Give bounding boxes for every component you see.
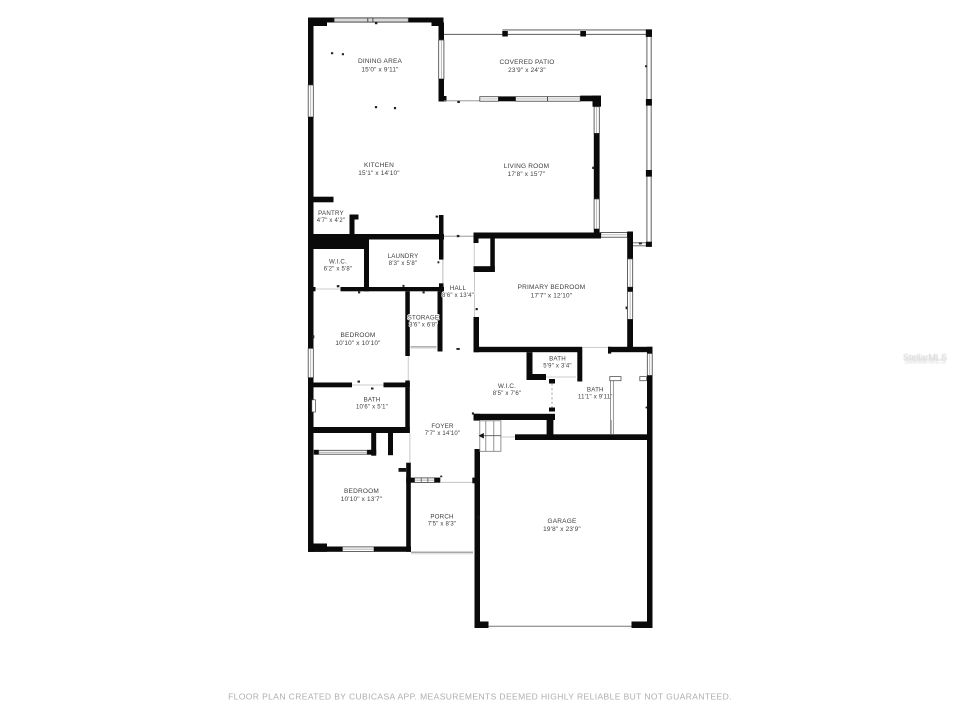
svg-text:BEDROOM: BEDROOM bbox=[341, 332, 376, 339]
svg-text:W.I.C.: W.I.C. bbox=[329, 259, 347, 266]
svg-text:GARAGE: GARAGE bbox=[547, 518, 576, 525]
svg-text:15'0" x 9'11": 15'0" x 9'11" bbox=[361, 67, 398, 74]
svg-text:15'1" x 14'10": 15'1" x 14'10" bbox=[358, 170, 399, 177]
svg-text:BATH: BATH bbox=[364, 396, 381, 403]
svg-text:4'7" x 4'2": 4'7" x 4'2" bbox=[317, 218, 345, 224]
svg-text:17'7" x 12'10": 17'7" x 12'10" bbox=[531, 293, 572, 300]
svg-text:FOYER: FOYER bbox=[431, 423, 454, 430]
svg-text:17'8" x 15'7": 17'8" x 15'7" bbox=[508, 171, 546, 178]
svg-text:8'5" x 7'6": 8'5" x 7'6" bbox=[493, 391, 521, 397]
svg-text:8'3" x 5'8": 8'3" x 5'8" bbox=[389, 261, 417, 267]
svg-text:W.I.C.: W.I.C. bbox=[498, 383, 516, 390]
svg-text:FLOOR PLAN CREATED BY CUBICASA: FLOOR PLAN CREATED BY CUBICASA APP. MEAS… bbox=[228, 692, 732, 702]
svg-text:LAUNDRY: LAUNDRY bbox=[388, 253, 419, 260]
svg-text:KITCHEN: KITCHEN bbox=[364, 162, 394, 169]
svg-text:LIVING ROOM: LIVING ROOM bbox=[504, 163, 550, 170]
svg-text:19'8" x 23'9": 19'8" x 23'9" bbox=[543, 526, 581, 533]
svg-text:STORAGE: STORAGE bbox=[408, 314, 440, 321]
svg-text:7'5" x 8'3": 7'5" x 8'3" bbox=[428, 521, 456, 527]
svg-text:10'10" x 13'7": 10'10" x 13'7" bbox=[341, 496, 382, 503]
svg-text:7'7" x 14'10": 7'7" x 14'10" bbox=[425, 431, 461, 437]
svg-text:PORCH: PORCH bbox=[430, 513, 453, 520]
svg-text:StellarMLS: StellarMLS bbox=[904, 356, 946, 366]
svg-text:BATH: BATH bbox=[587, 387, 604, 394]
svg-text:10'10" x 10'10": 10'10" x 10'10" bbox=[335, 340, 380, 347]
svg-text:PANTRY: PANTRY bbox=[318, 210, 344, 217]
svg-text:DINING AREA: DINING AREA bbox=[358, 58, 403, 65]
svg-text:HALL: HALL bbox=[450, 285, 467, 292]
svg-text:23'9" x 24'3": 23'9" x 24'3" bbox=[508, 67, 546, 74]
svg-text:BATH: BATH bbox=[549, 355, 566, 362]
svg-text:8'6" x 13'4": 8'6" x 13'4" bbox=[442, 293, 474, 299]
svg-text:BEDROOM: BEDROOM bbox=[344, 488, 379, 495]
svg-text:PRIMARY BEDROOM: PRIMARY BEDROOM bbox=[518, 284, 586, 291]
svg-text:10'6" x 5'1": 10'6" x 5'1" bbox=[356, 404, 388, 410]
svg-text:6'2" x 5'8": 6'2" x 5'8" bbox=[324, 267, 352, 273]
svg-text:3'6" x 6'8": 3'6" x 6'8" bbox=[409, 322, 437, 328]
svg-text:COVERED PATIO: COVERED PATIO bbox=[499, 59, 554, 66]
svg-text:5'9" x 3'4": 5'9" x 3'4" bbox=[543, 363, 571, 369]
svg-text:11'1" x 9'11": 11'1" x 9'11" bbox=[578, 395, 613, 401]
